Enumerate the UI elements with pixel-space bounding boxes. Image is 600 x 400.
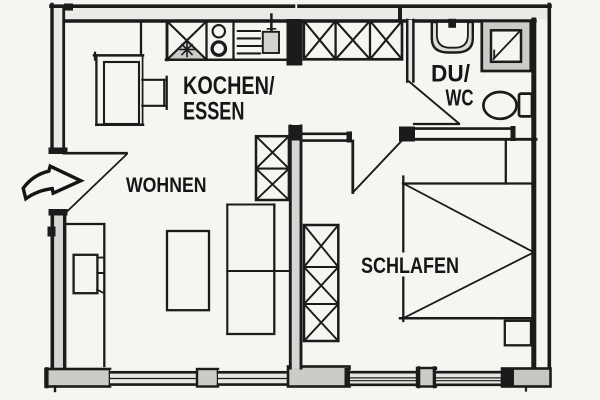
- svg-text:ESSEN: ESSEN: [183, 98, 245, 126]
- svg-text:DU/: DU/: [431, 61, 470, 88]
- svg-text:KOCHEN/: KOCHEN/: [183, 72, 275, 100]
- svg-text:SCHLAFEN: SCHLAFEN: [361, 253, 459, 278]
- svg-text:WOHNEN: WOHNEN: [126, 173, 207, 197]
- svg-text:WC: WC: [446, 85, 474, 111]
